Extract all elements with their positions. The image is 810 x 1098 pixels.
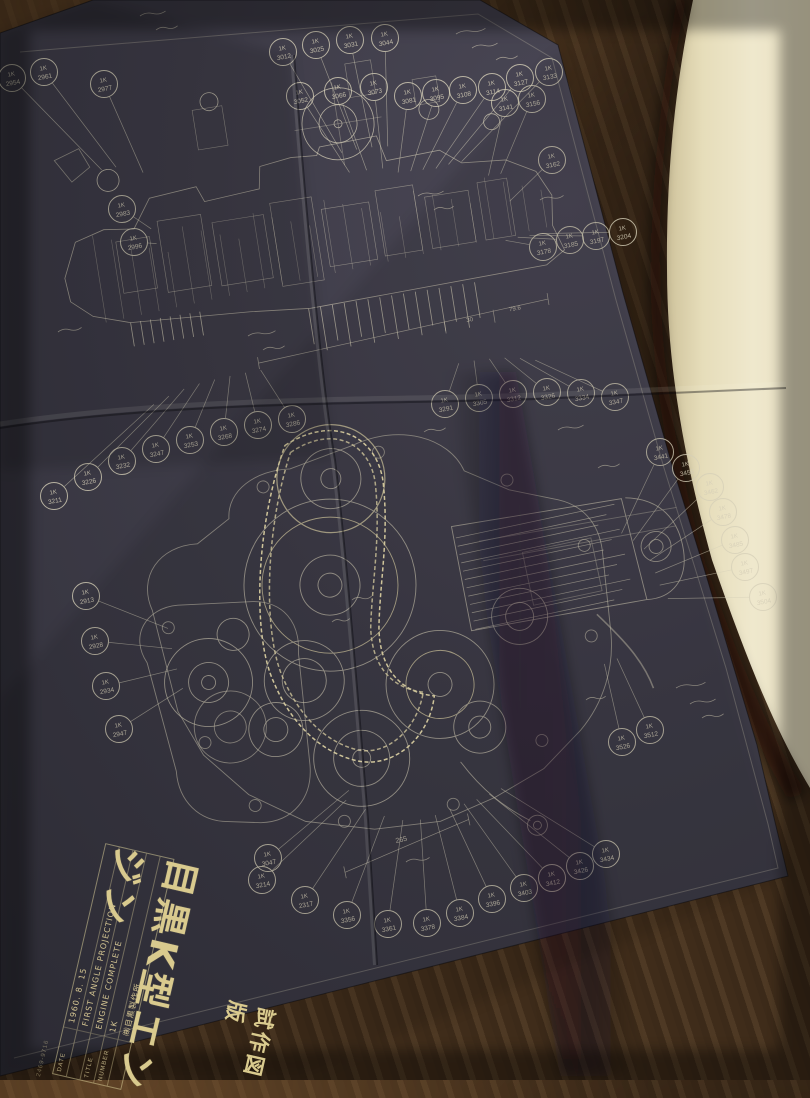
svg-text:1K: 1K — [618, 225, 626, 232]
svg-text:3204: 3204 — [616, 233, 632, 243]
part-balloon: 1K3204 — [610, 219, 637, 246]
svg-text:1K: 1K — [681, 461, 689, 468]
photo-scene: 30 79.6 — [0, 0, 810, 1080]
photo-of-blueprint: { "blueprint": { "title_block": { "main_… — [0, 0, 810, 1080]
blueprint-sheet: 30 79.6 — [0, 0, 788, 1076]
